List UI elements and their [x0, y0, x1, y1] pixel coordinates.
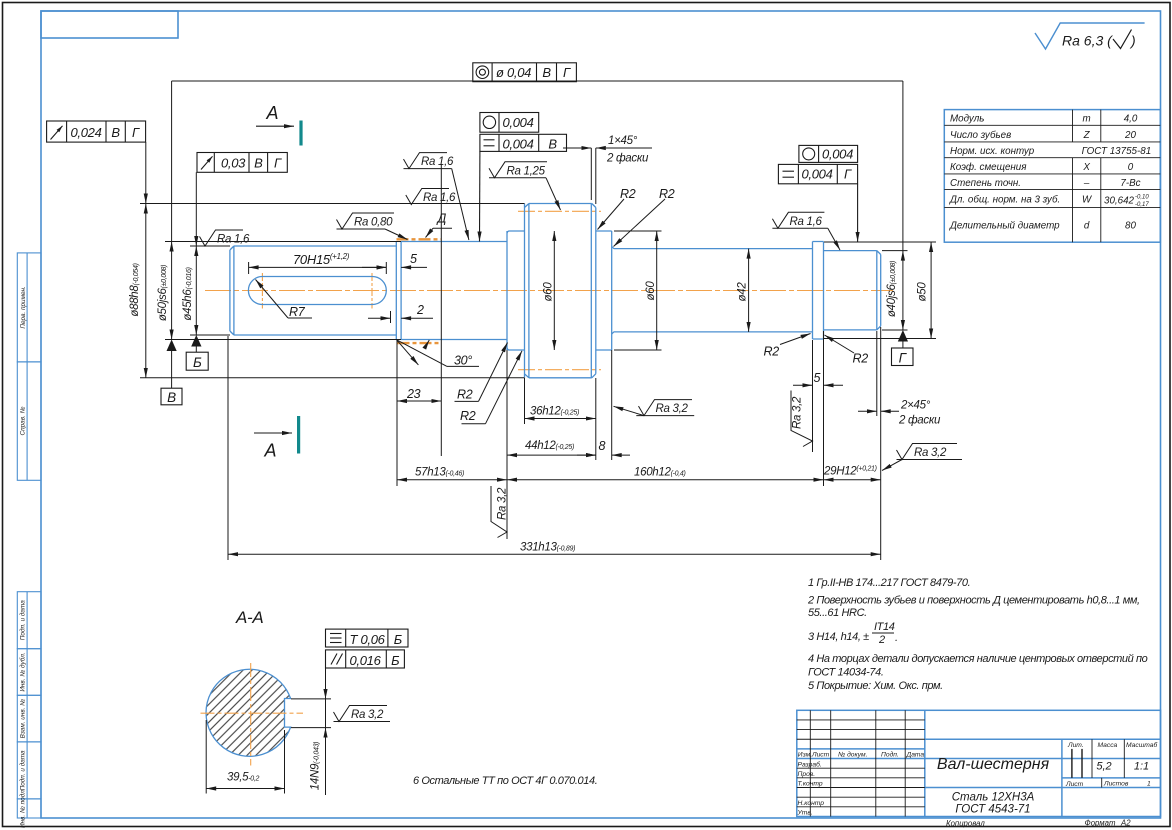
svg-text:ГОСТ 4543-71: ГОСТ 4543-71	[955, 804, 1030, 816]
svg-text:R2: R2	[620, 187, 636, 201]
svg-text:№ докум.: № докум.	[838, 751, 868, 759]
svg-text:-0,10: -0,10	[1135, 195, 1149, 201]
svg-text:Г: Г	[274, 156, 282, 171]
svg-text:30,642: 30,642	[1104, 196, 1135, 207]
svg-text:ø45h6(-0,016): ø45h6(-0,016)	[182, 267, 194, 320]
svg-text:5: 5	[410, 252, 417, 266]
svg-text:R2: R2	[853, 352, 869, 366]
svg-text:0,016: 0,016	[350, 653, 382, 668]
svg-text:Ra 1,25: Ra 1,25	[507, 165, 546, 177]
svg-text:331h13(-0,89): 331h13(-0,89)	[520, 542, 575, 554]
svg-text:57h13(-0,46): 57h13(-0,46)	[415, 467, 464, 479]
svg-text:ø50: ø50	[917, 282, 929, 302]
svg-text:Ra 3,2: Ra 3,2	[351, 709, 384, 721]
svg-text:8: 8	[599, 439, 606, 453]
svg-text:Г: Г	[132, 125, 140, 140]
svg-text:Пров.: Пров.	[798, 771, 816, 778]
svg-text:30°: 30°	[454, 354, 472, 368]
svg-text:2: 2	[878, 634, 885, 646]
svg-text:2 Поверхность зубьев и поверх: 2 Поверхность зубьев и поверхность Д цем…	[807, 595, 1140, 607]
svg-text:1×45°: 1×45°	[608, 135, 638, 147]
svg-text:39,5-0,2: 39,5-0,2	[227, 772, 259, 784]
svg-text:Копировал: Копировал	[946, 819, 985, 828]
svg-text:Т.контр: Т.контр	[798, 781, 823, 788]
svg-text:80: 80	[1125, 221, 1136, 232]
svg-text:Ra 3,2: Ra 3,2	[792, 396, 804, 429]
svg-text:Г: Г	[563, 65, 571, 80]
svg-text:А: А	[266, 103, 279, 123]
svg-text:R2: R2	[764, 345, 780, 359]
svg-text:Д: Д	[436, 212, 447, 226]
svg-text:Лист: Лист	[1065, 781, 1084, 788]
svg-text:3 Н14, h14, ±: 3 Н14, h14, ±	[808, 631, 869, 643]
svg-text:А-А: А-А	[235, 608, 263, 627]
svg-text:А: А	[264, 441, 277, 461]
svg-text:Z: Z	[1083, 130, 1091, 141]
svg-text:.: .	[895, 632, 898, 644]
svg-text:): )	[1129, 33, 1136, 49]
svg-text:20: 20	[1124, 130, 1136, 141]
svg-text:В: В	[548, 137, 557, 152]
svg-text:2 фаски: 2 фаски	[898, 415, 941, 427]
svg-text:ø42: ø42	[737, 282, 749, 302]
svg-text:-0,17: -0,17	[1135, 202, 1149, 208]
svg-text:Вал-шестерня: Вал-шестерня	[937, 756, 1050, 773]
svg-text:Лит.: Лит.	[1067, 742, 1084, 749]
svg-text:R7: R7	[289, 305, 306, 319]
svg-text:Листов: Листов	[1103, 780, 1129, 787]
svg-text:А2: А2	[1120, 819, 1131, 828]
svg-text:1 Гр.II-НВ 174...217 ГОСТ 847: 1 Гр.II-НВ 174...217 ГОСТ 8479-70.	[808, 577, 970, 589]
svg-text:Изм.: Изм.	[798, 752, 812, 759]
svg-text:Перв. примен.: Перв. примен.	[20, 286, 27, 328]
svg-text:ø40js6(±0,008): ø40js6(±0,008)	[886, 261, 898, 317]
svg-text:В: В	[542, 65, 551, 80]
svg-text:ГОСТ 14034-74.: ГОСТ 14034-74.	[808, 667, 883, 679]
svg-text:55...61 HRC.: 55...61 HRC.	[808, 607, 867, 619]
svg-text:Н.контр: Н.контр	[798, 800, 825, 807]
svg-text:Ra 3,2: Ra 3,2	[497, 487, 509, 520]
svg-text:Масштаб: Масштаб	[1126, 741, 1157, 749]
svg-text:Коэф. смещения: Коэф. смещения	[950, 162, 1027, 173]
svg-text:36h12(-0,25): 36h12(-0,25)	[530, 406, 579, 418]
svg-text:ø60: ø60	[645, 281, 657, 301]
svg-text:0,004: 0,004	[503, 115, 534, 130]
svg-text:Ra 6,3 (: Ra 6,3 (	[1062, 33, 1113, 49]
svg-text:Число зубьев: Число зубьев	[950, 130, 1011, 141]
svg-text:0: 0	[1128, 162, 1134, 173]
svg-text:Лист: Лист	[811, 752, 830, 759]
svg-text:0,004: 0,004	[822, 147, 853, 162]
svg-text:ГОСТ 13755-81: ГОСТ 13755-81	[1082, 146, 1151, 157]
svg-text:d: d	[1084, 221, 1090, 232]
svg-text:Дл. общ. норм. на 3 зуб.: Дл. общ. норм. на 3 зуб.	[949, 195, 1060, 206]
svg-text:В: В	[254, 156, 263, 171]
svg-text:0,03: 0,03	[221, 156, 246, 171]
svg-text:0,024: 0,024	[71, 125, 102, 140]
svg-text:7-Bc: 7-Bc	[1120, 178, 1140, 189]
svg-text:1:1: 1:1	[1134, 761, 1149, 773]
svg-text:В: В	[167, 390, 176, 405]
svg-text:R2: R2	[457, 388, 473, 402]
svg-text:Делительный диаметр: Делительный диаметр	[949, 221, 1060, 232]
svg-text:Разраб.: Разраб.	[798, 760, 822, 768]
svg-text:4,0: 4,0	[1124, 114, 1138, 125]
svg-text:Сталь 12ХН3А: Сталь 12ХН3А	[952, 792, 1035, 804]
svg-text:Модуль: Модуль	[950, 114, 984, 125]
svg-text:Б: Б	[193, 355, 202, 370]
svg-text:29Н12(+0,21): 29Н12(+0,21)	[823, 466, 877, 478]
svg-text:Г: Г	[844, 167, 852, 182]
svg-text:ø60: ø60	[543, 282, 555, 302]
svg-text:X: X	[1082, 162, 1090, 173]
svg-text:IT14: IT14	[874, 621, 895, 633]
svg-text:44h12(-0,25): 44h12(-0,25)	[525, 440, 574, 452]
svg-text:Дата: Дата	[906, 752, 925, 759]
svg-text:0,004: 0,004	[503, 137, 534, 152]
svg-text:4 На торцах детали допускаетс: 4 На торцах детали допускается наличие ц…	[808, 653, 1148, 665]
svg-text:R2: R2	[460, 409, 476, 423]
svg-text:6 Остальные ТТ по ОСТ 4Г 0.07: 6 Остальные ТТ по ОСТ 4Г 0.070.014.	[413, 775, 597, 787]
svg-text:ø50js6(±0,008): ø50js6(±0,008)	[157, 265, 169, 321]
svg-text:ø 0,04: ø 0,04	[496, 65, 531, 80]
svg-text:В: В	[111, 125, 120, 140]
svg-text:Масса: Масса	[1098, 742, 1118, 749]
svg-text:Г: Г	[899, 350, 908, 365]
svg-text:Норм. исх. контур: Норм. исх. контур	[950, 146, 1035, 157]
svg-text:Ra 1,6: Ra 1,6	[790, 216, 823, 228]
svg-text:5: 5	[814, 371, 821, 385]
svg-text:14N9(-0,043): 14N9(-0,043)	[310, 742, 322, 790]
svg-text:5,2: 5,2	[1096, 761, 1111, 773]
svg-text:2×45°: 2×45°	[900, 400, 931, 412]
svg-text:0,004: 0,004	[802, 167, 833, 182]
svg-text:Утв.: Утв.	[797, 810, 813, 817]
svg-text:Ra 1,6: Ra 1,6	[423, 192, 456, 204]
svg-text:70Н15(+1,2): 70Н15(+1,2)	[293, 252, 350, 267]
svg-text:1: 1	[1147, 780, 1151, 787]
svg-text:Инв. № дубл.: Инв. № дубл.	[19, 652, 27, 691]
svg-text:Взам. инв. №: Взам. инв. №	[20, 699, 27, 739]
svg-text:ø88h8(-0,054): ø88h8(-0,054)	[129, 263, 141, 316]
svg-text:2: 2	[416, 303, 424, 317]
svg-text:2 фаски: 2 фаски	[606, 153, 649, 165]
svg-text:Б: Б	[394, 632, 403, 647]
svg-text:160h12(-0,4): 160h12(-0,4)	[634, 467, 686, 479]
svg-text:Инв. № подл.: Инв. № подл.	[19, 788, 27, 828]
svg-text:Справ. №: Справ. №	[20, 406, 27, 435]
svg-text:Подп. и дата: Подп. и дата	[19, 750, 27, 790]
svg-text:23: 23	[406, 387, 421, 401]
svg-text:W: W	[1082, 195, 1093, 206]
svg-text:Ra 1,6: Ra 1,6	[421, 156, 454, 168]
svg-text:Ra 0,80: Ra 0,80	[354, 217, 393, 229]
svg-text:Ra 3,2: Ra 3,2	[914, 447, 947, 459]
svg-text:Ra 3,2: Ra 3,2	[656, 403, 689, 415]
svg-text:Степень точн.: Степень точн.	[950, 178, 1021, 189]
svg-text:R2: R2	[659, 187, 675, 201]
svg-text:Б: Б	[391, 653, 400, 668]
svg-text:m: m	[1083, 114, 1091, 125]
svg-text:Подп.: Подп.	[881, 751, 899, 759]
svg-text:–: –	[1083, 178, 1090, 189]
svg-text:Т 0,06: Т 0,06	[350, 632, 386, 647]
svg-text:Формат: Формат	[1085, 819, 1116, 828]
svg-text:5 Покрытие: Хим. Окс. прм.: 5 Покрытие: Хим. Окс. прм.	[808, 680, 943, 692]
svg-text:Ra 1,6: Ra 1,6	[217, 234, 250, 246]
svg-text:Подп. и дата: Подп. и дата	[19, 600, 27, 640]
